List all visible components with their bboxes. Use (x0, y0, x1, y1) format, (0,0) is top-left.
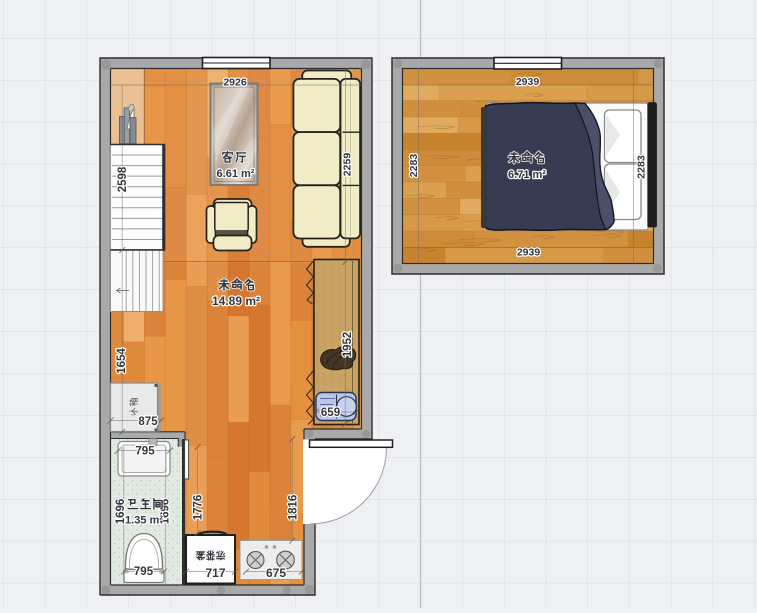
svg-text:2939: 2939 (516, 76, 540, 88)
svg-text:2259: 2259 (342, 153, 354, 177)
svg-text:659: 659 (321, 407, 340, 419)
svg-text:717: 717 (205, 566, 225, 580)
svg-text:1654: 1654 (116, 348, 128, 374)
svg-text:675: 675 (266, 566, 286, 580)
svg-text:795: 795 (135, 446, 155, 458)
svg-text:6.71 m²: 6.71 m² (508, 169, 546, 181)
svg-text:2939: 2939 (517, 247, 541, 259)
svg-text:1776: 1776 (193, 495, 205, 521)
svg-text:875: 875 (138, 416, 158, 428)
svg-text:1816: 1816 (288, 495, 300, 521)
svg-text:6.61 m²: 6.61 m² (217, 168, 255, 180)
svg-text:2926: 2926 (223, 77, 247, 89)
svg-text:2598: 2598 (117, 166, 129, 192)
svg-text:2283: 2283 (408, 154, 420, 178)
svg-text:14.89 m²: 14.89 m² (212, 294, 260, 308)
svg-text:1952: 1952 (342, 332, 354, 358)
svg-text:1.35 m²: 1.35 m² (125, 515, 163, 527)
svg-text:795: 795 (134, 566, 154, 578)
svg-text:2283: 2283 (636, 155, 648, 179)
